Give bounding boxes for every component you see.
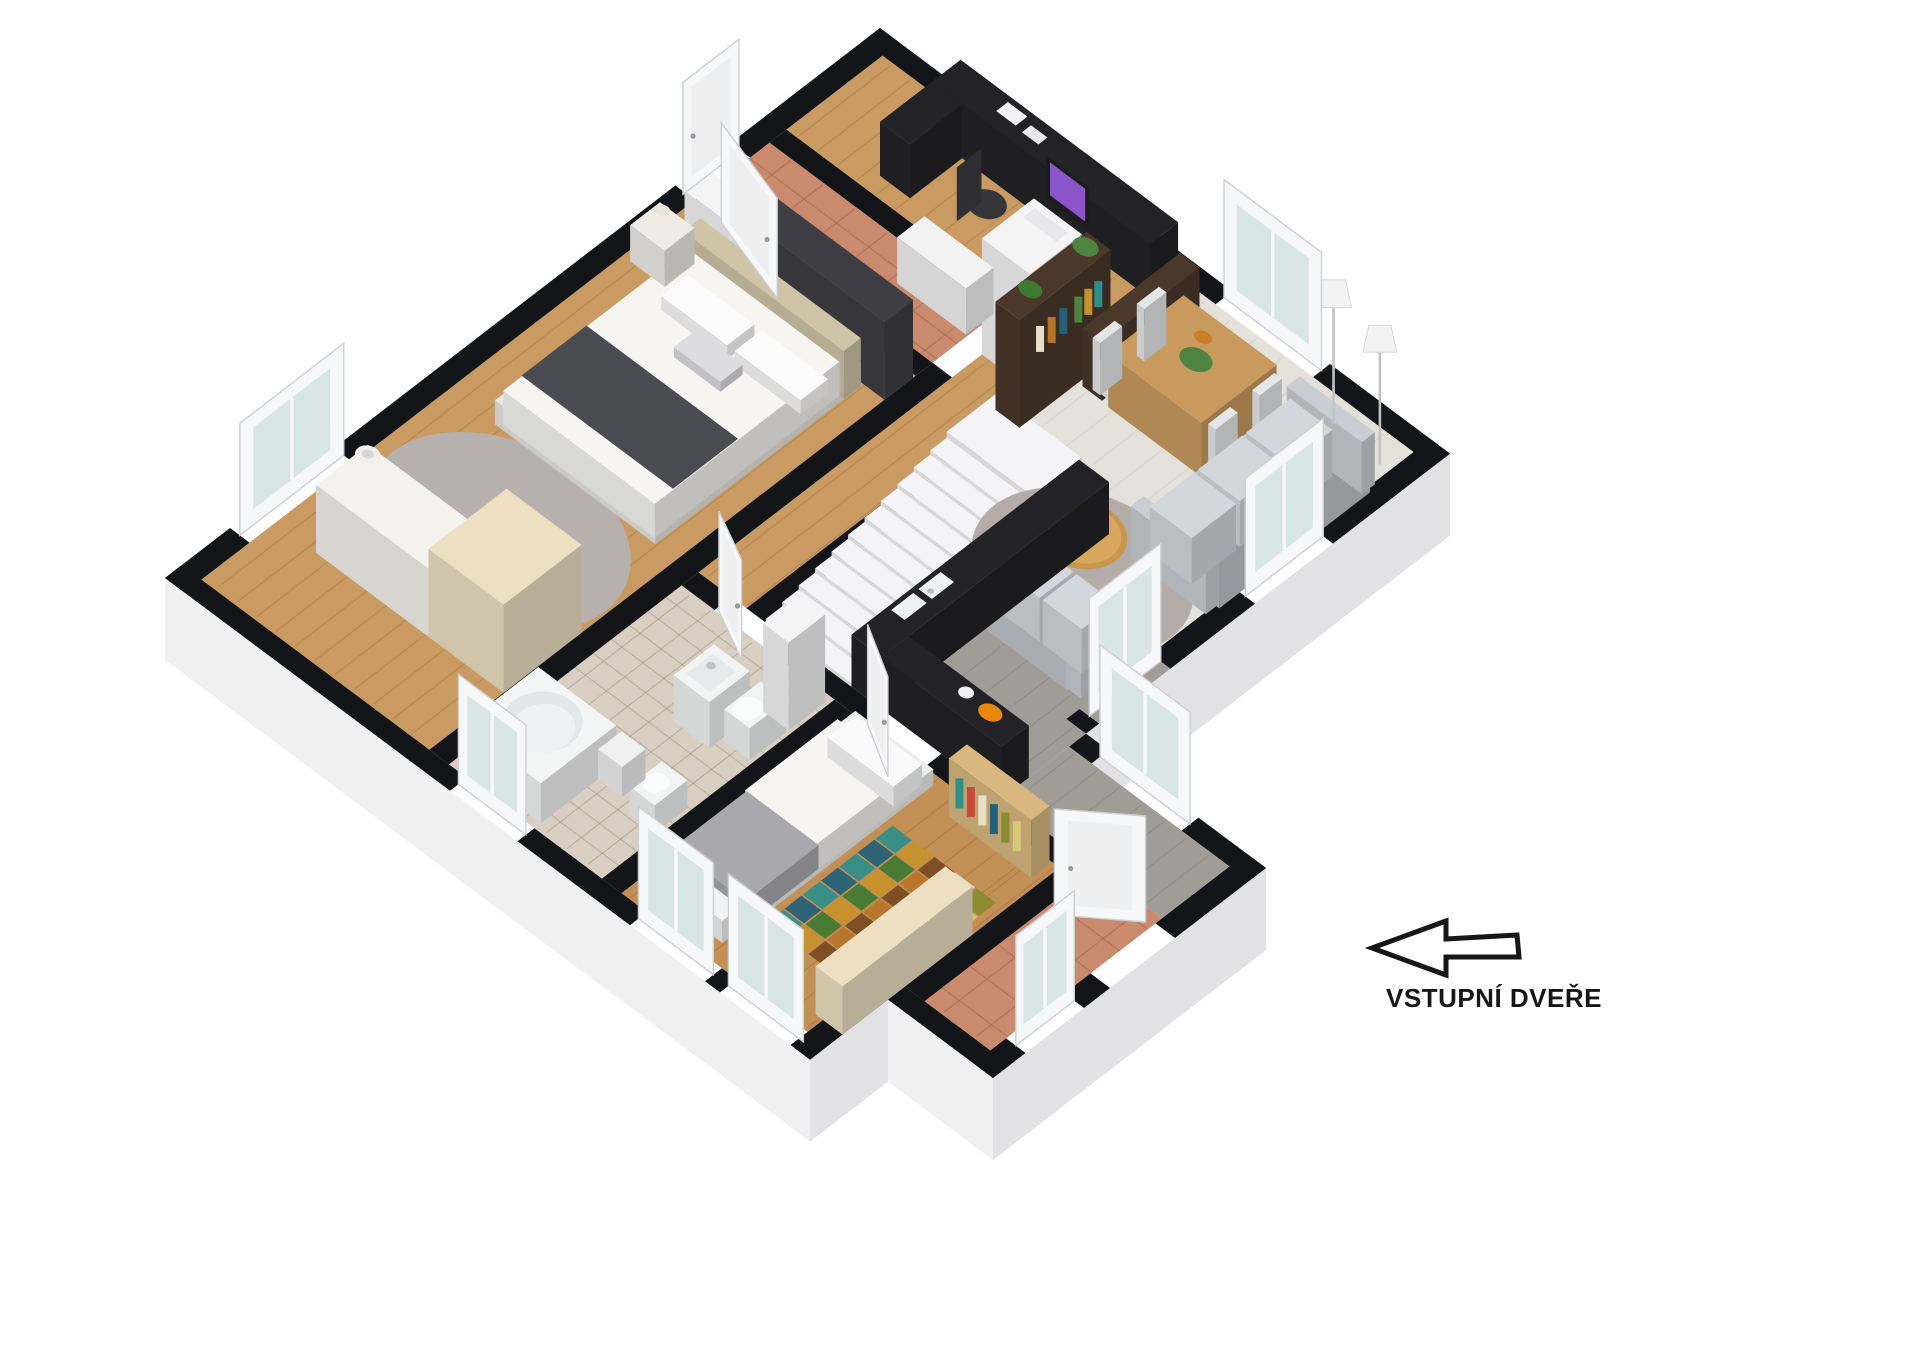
floorplan-3d-render: VSTUPNÍ DVEŘE — [0, 0, 1920, 1346]
entrance-arrow-icon — [1372, 921, 1519, 975]
entrance-door-label: VSTUPNÍ DVEŘE — [1386, 983, 1602, 1013]
entrance-annotation: VSTUPNÍ DVEŘE — [1372, 921, 1602, 1013]
floorplan-page: VSTUPNÍ DVEŘE — [0, 0, 1920, 1346]
